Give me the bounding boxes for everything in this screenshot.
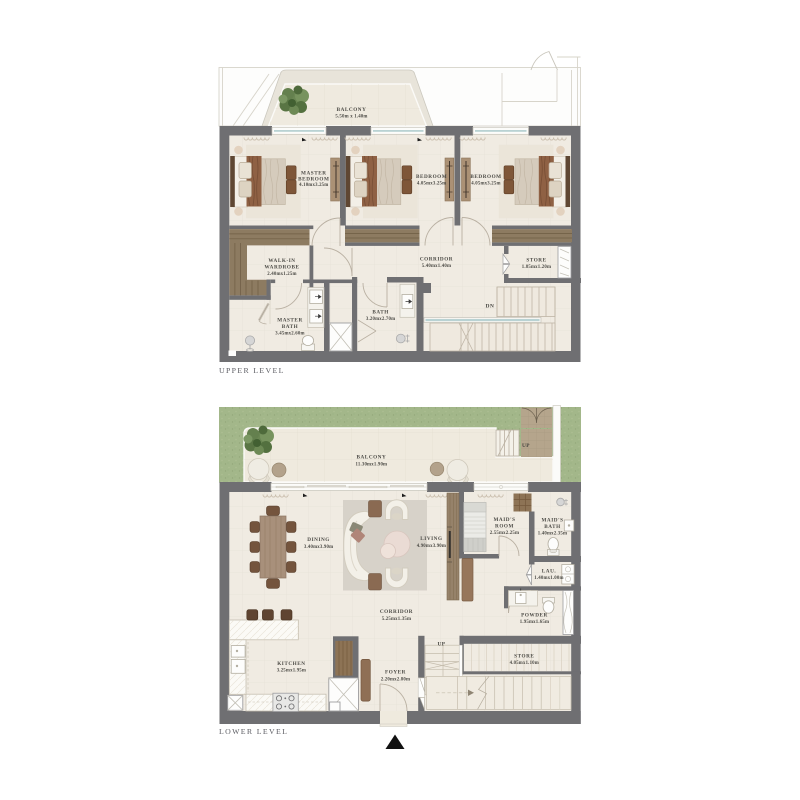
svg-text:2.55mx2.25m: 2.55mx2.25m (490, 531, 519, 536)
svg-text:BALCONY: BALCONY (357, 455, 387, 461)
svg-text:MAID'S: MAID'S (493, 517, 515, 523)
svg-text:4.10mx3.25m: 4.10mx3.25m (299, 183, 328, 188)
svg-text:4.05mx3.25m: 4.05mx3.25m (471, 181, 500, 186)
svg-text:1.40mx1.00m: 1.40mx1.00m (534, 576, 563, 581)
svg-text:WARDROBE: WARDROBE (265, 265, 300, 271)
svg-text:5.40mx1.40m: 5.40mx1.40m (422, 264, 451, 269)
svg-text:1.85mx1.20m: 1.85mx1.20m (522, 265, 551, 270)
svg-text:5.50m x 1.40m: 5.50m x 1.40m (335, 115, 367, 120)
svg-text:BEDROOM: BEDROOM (470, 174, 501, 180)
svg-text:2.20mx2.80m: 2.20mx2.80m (381, 677, 410, 682)
svg-text:4.90mx3.90m: 4.90mx3.90m (417, 544, 446, 549)
svg-text:LAU.: LAU. (542, 569, 557, 575)
svg-text:BEDROOM: BEDROOM (298, 176, 329, 182)
svg-text:1.95mx1.65m: 1.95mx1.65m (520, 620, 549, 625)
svg-text:4.05mx1.10m: 4.05mx1.10m (510, 661, 539, 666)
svg-text:5.25mx1.35m: 5.25mx1.35m (382, 617, 411, 622)
svg-text:ROOM: ROOM (495, 524, 514, 530)
svg-text:UP: UP (522, 443, 530, 449)
svg-text:CORRIDOR: CORRIDOR (420, 257, 453, 263)
svg-text:BALCONY: BALCONY (337, 107, 367, 113)
svg-text:LIVING: LIVING (420, 536, 442, 542)
svg-text:BEDROOM: BEDROOM (416, 174, 447, 180)
svg-text:DN: DN (486, 304, 495, 310)
svg-text:STORE: STORE (526, 258, 546, 264)
svg-text:3.40mx3.90m: 3.40mx3.90m (304, 545, 333, 550)
svg-text:UP: UP (437, 642, 445, 648)
svg-text:LOWER LEVEL: LOWER LEVEL (219, 727, 288, 736)
svg-text:3.25mx1.95m: 3.25mx1.95m (277, 668, 306, 673)
svg-text:DINING: DINING (307, 537, 330, 543)
svg-text:MAID'S: MAID'S (541, 518, 563, 524)
svg-text:BATH: BATH (372, 310, 389, 316)
svg-text:UPPER LEVEL: UPPER LEVEL (219, 366, 285, 375)
svg-text:STORE: STORE (514, 654, 534, 660)
svg-text:1.40mx2.35m: 1.40mx2.35m (538, 531, 567, 536)
svg-text:3.20mx2.70m: 3.20mx2.70m (366, 317, 395, 322)
svg-text:BATH: BATH (282, 324, 299, 330)
svg-text:4.05mx3.25m: 4.05mx3.25m (417, 181, 446, 186)
svg-text:BATH: BATH (544, 524, 561, 530)
svg-text:WALK-IN: WALK-IN (268, 258, 295, 264)
svg-text:KITCHEN: KITCHEN (277, 661, 305, 667)
svg-text:3.45mx2.60m: 3.45mx2.60m (275, 331, 304, 336)
svg-text:POWDER: POWDER (521, 613, 548, 619)
svg-text:11.30mx1.90m: 11.30mx1.90m (356, 462, 388, 467)
svg-text:FOYER: FOYER (385, 670, 406, 676)
svg-text:CORRIDOR: CORRIDOR (380, 609, 413, 615)
svg-text:2.40mx1.25m: 2.40mx1.25m (267, 272, 296, 277)
svg-text:MASTER: MASTER (277, 318, 303, 324)
